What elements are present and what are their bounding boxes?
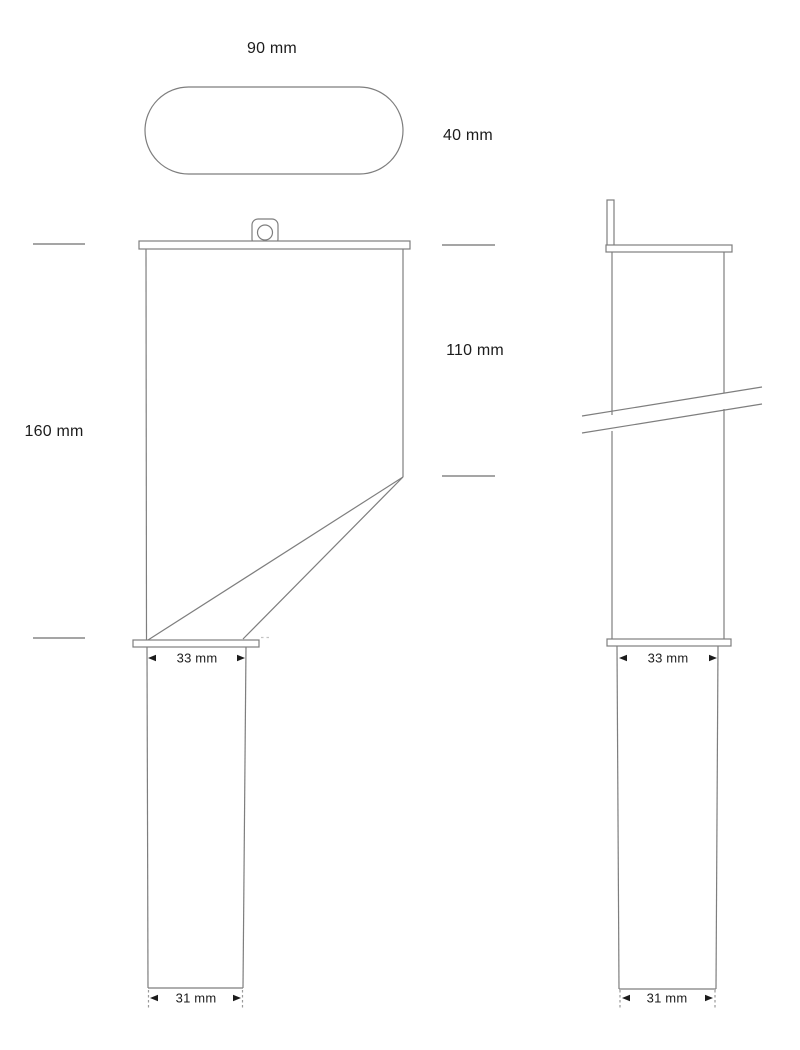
arrow-left-icon	[622, 995, 630, 1001]
arrow-left-icon	[150, 995, 158, 1001]
top-view-outline	[145, 87, 403, 174]
side-outlet-top-dim-label: 33 mm	[648, 651, 689, 666]
front-taper-outer-line	[148, 477, 403, 640]
side-outlet-bottom-dim-label: 31 mm	[647, 991, 688, 1006]
side-top-flange	[606, 245, 732, 252]
front-outlet-left-edge	[147, 647, 148, 988]
front-upper-height-label: 110 mm	[446, 342, 504, 360]
front-outlet-bottom-dim-label: 31 mm	[176, 991, 217, 1006]
front-bottom-flange	[133, 640, 259, 647]
dimension-tick-lines	[33, 244, 495, 638]
side-tab-edge	[607, 200, 614, 247]
arrow-right-icon	[237, 655, 245, 661]
top-view-depth-label: 40 mm	[443, 127, 493, 145]
front-outlet-right-edge	[243, 647, 246, 988]
front-body-left-edge	[146, 249, 147, 640]
side-view	[582, 200, 762, 1008]
drawing-linework	[0, 0, 800, 1050]
side-outlet-left-edge	[617, 646, 619, 989]
front-taper-inner-line	[243, 477, 403, 639]
arrow-right-icon	[705, 995, 713, 1001]
technical-drawing-canvas: 90 mm 40 mm 160 mm 110 mm 33 mm 31 mm 33…	[0, 0, 800, 1050]
arrow-right-icon	[233, 995, 241, 1001]
break-line-lower	[582, 404, 762, 433]
front-overall-height-label: 160 mm	[25, 423, 84, 441]
front-top-flange	[139, 241, 410, 249]
top-view-width-label: 90 mm	[247, 40, 297, 58]
side-bottom-flange	[607, 639, 731, 646]
front-outlet-top-dim-label: 33 mm	[177, 651, 218, 666]
arrow-right-icon	[709, 655, 717, 661]
side-outlet-right-edge	[716, 646, 718, 989]
front-view	[133, 219, 410, 1008]
break-line-upper	[582, 387, 762, 416]
top-view	[145, 87, 403, 174]
arrow-left-icon	[148, 655, 156, 661]
arrow-left-icon	[619, 655, 627, 661]
